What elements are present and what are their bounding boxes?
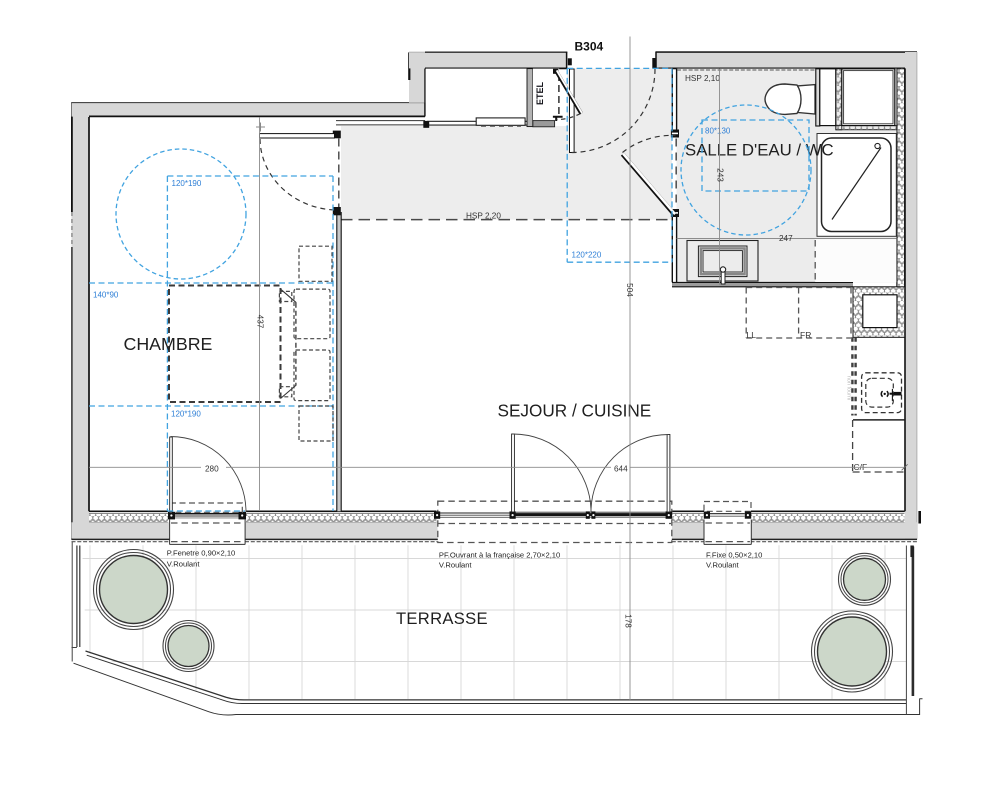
svg-text:C/F: C/F [854, 462, 868, 472]
svg-text:80*130: 80*130 [705, 127, 731, 136]
svg-text:SEJOUR / CUISINE: SEJOUR / CUISINE [498, 401, 652, 421]
svg-text:140*90: 140*90 [93, 291, 119, 300]
svg-text:TERRASSE: TERRASSE [396, 609, 488, 628]
svg-text:B304: B304 [575, 40, 604, 54]
svg-text:437: 437 [255, 315, 264, 329]
svg-text:120*190: 120*190 [171, 410, 201, 419]
svg-text:V.Roulant: V.Roulant [167, 560, 201, 569]
svg-text:PF.Ouvrant à la française 2,70: PF.Ouvrant à la française 2,70×2,10 [439, 551, 560, 560]
svg-text:120*190: 120*190 [172, 179, 202, 188]
svg-text:FR: FR [800, 330, 811, 340]
svg-text:F.Fixe 0,50×2,10: F.Fixe 0,50×2,10 [706, 551, 762, 560]
svg-text:HSP 2,20: HSP 2,20 [466, 211, 501, 220]
svg-text:ETEL: ETEL [535, 82, 545, 106]
svg-text:504: 504 [625, 283, 634, 297]
svg-text:HSP 2,10: HSP 2,10 [685, 74, 720, 83]
svg-text:SALLE D'EAU / WC: SALLE D'EAU / WC [685, 141, 834, 160]
svg-text:V.Roulant: V.Roulant [439, 561, 473, 570]
svg-text:CHAMBRE: CHAMBRE [124, 334, 213, 354]
svg-text:V.Roulant: V.Roulant [706, 561, 740, 570]
svg-text:LL: LL [747, 330, 757, 340]
svg-text:280: 280 [205, 465, 219, 474]
svg-text:120*220: 120*220 [572, 251, 602, 260]
svg-text:non fourni: non fourni [846, 376, 852, 400]
svg-text:178: 178 [623, 614, 632, 628]
svg-text:247: 247 [779, 234, 793, 243]
svg-text:644: 644 [614, 465, 628, 474]
svg-text:243: 243 [715, 168, 724, 182]
svg-text:P.Fenetre 0,90×2,10: P.Fenetre 0,90×2,10 [167, 549, 235, 558]
